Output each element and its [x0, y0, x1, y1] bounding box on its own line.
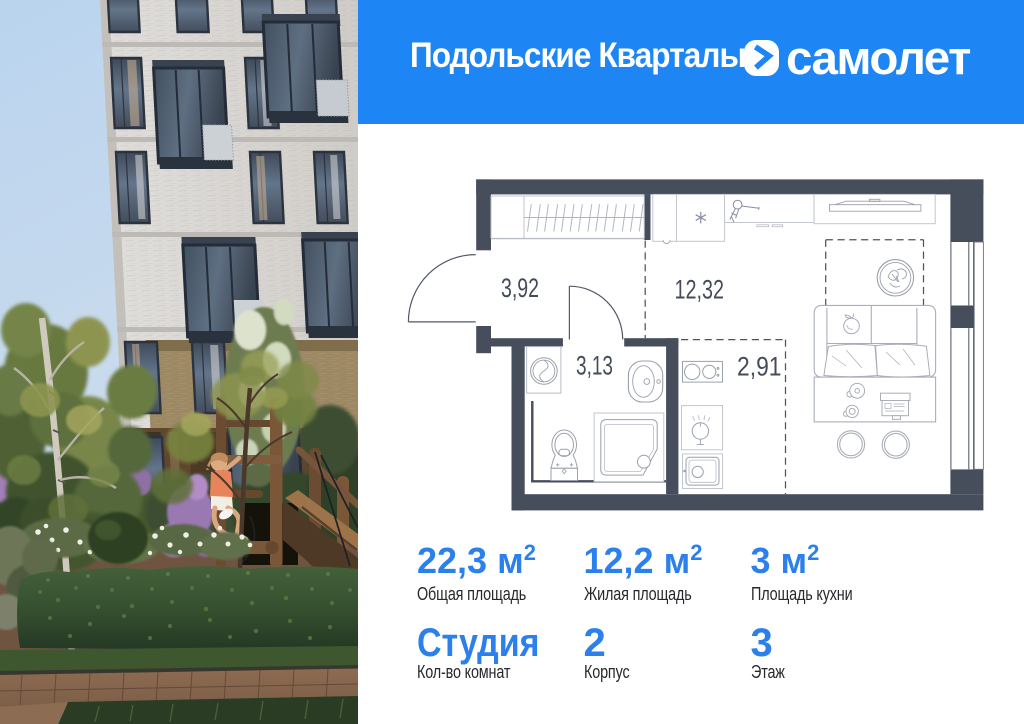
svg-text:12,32: 12,32 — [675, 275, 725, 305]
svg-text:3,13: 3,13 — [576, 351, 613, 381]
svg-text:3,92: 3,92 — [501, 273, 539, 303]
svg-text:2,91: 2,91 — [737, 352, 782, 382]
